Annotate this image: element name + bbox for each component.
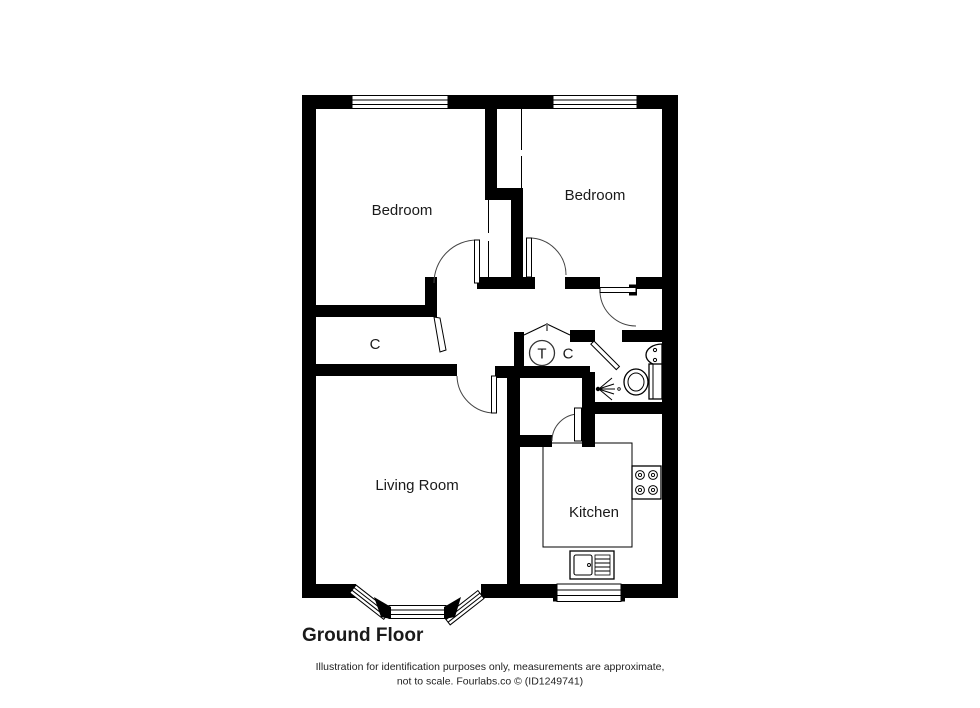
closet-door (434, 317, 446, 352)
disclaimer-line1: Illustration for identification purposes… (316, 661, 665, 673)
kitchen-sink-icon (570, 551, 614, 579)
stove-icon (632, 466, 661, 499)
toilet-icon (624, 364, 662, 399)
bay-window (350, 585, 484, 625)
floor-title: Ground Floor (302, 625, 424, 646)
kitchen-door (552, 408, 582, 441)
bedroom1-door (434, 240, 480, 283)
disclaimer-line2: not to scale. Fourlabs.co © (ID1249741) (397, 676, 583, 688)
bedroom1-label: Bedroom (372, 202, 433, 219)
floor-plan: Bedroom Bedroom C T C Living Room Kitche… (0, 0, 980, 708)
bedroom1-window (352, 96, 448, 109)
shower-icon (596, 378, 621, 400)
bedroom2-label: Bedroom (565, 187, 626, 204)
closet1-label: C (370, 336, 381, 353)
bathroom-door (591, 341, 620, 370)
bedroom2-door (527, 238, 567, 277)
kitchen-counter (543, 443, 632, 547)
tank-symbol: T (530, 341, 555, 366)
living-room-label: Living Room (375, 477, 458, 494)
bathroom-sink-icon (646, 344, 662, 366)
bedroom2-window (553, 96, 637, 109)
walls (302, 95, 678, 598)
living-room-door (457, 376, 497, 413)
bifold-door-icon (524, 323, 570, 335)
kitchen-label: Kitchen (569, 504, 619, 521)
kitchen-window (553, 584, 625, 602)
lobby-door (600, 285, 637, 327)
closet2-label: C (563, 346, 574, 363)
tank-label: T (537, 346, 546, 363)
